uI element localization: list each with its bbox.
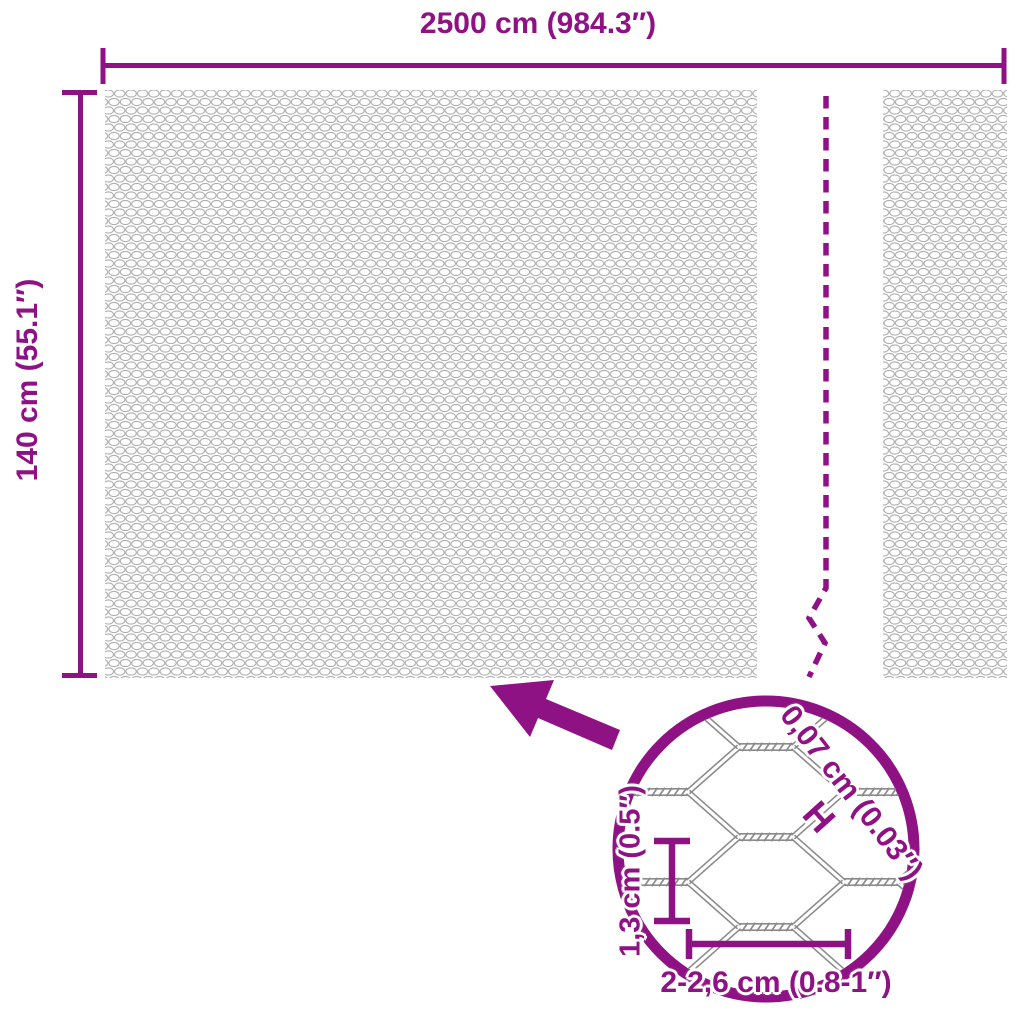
height-dimension-line xyxy=(62,90,97,678)
cell-height-label: 1,3 cm (0.5″) xyxy=(617,785,646,957)
width-dimension-line xyxy=(103,48,1004,84)
mesh-panel-right xyxy=(883,90,1007,678)
height-dimension-label: 140 cm (55.1″) xyxy=(13,279,43,482)
detail-width-dimension-line xyxy=(689,929,848,959)
cell-width-label: 2-2,6 cm (0.8-1″) xyxy=(660,968,891,998)
magnifier-circle-icon xyxy=(618,701,914,997)
roll-continuation-dashed-line xyxy=(809,96,826,677)
mesh-panel-left xyxy=(105,90,757,678)
diagram-graphics xyxy=(0,0,1024,1024)
wire-mesh-dimension-diagram: 2500 cm (984.3″) 140 cm (55.1″) 0,07 cm … xyxy=(0,0,1024,1024)
width-dimension-label: 2500 cm (984.3″) xyxy=(420,9,656,39)
magnifier-arrow-icon xyxy=(490,680,620,750)
